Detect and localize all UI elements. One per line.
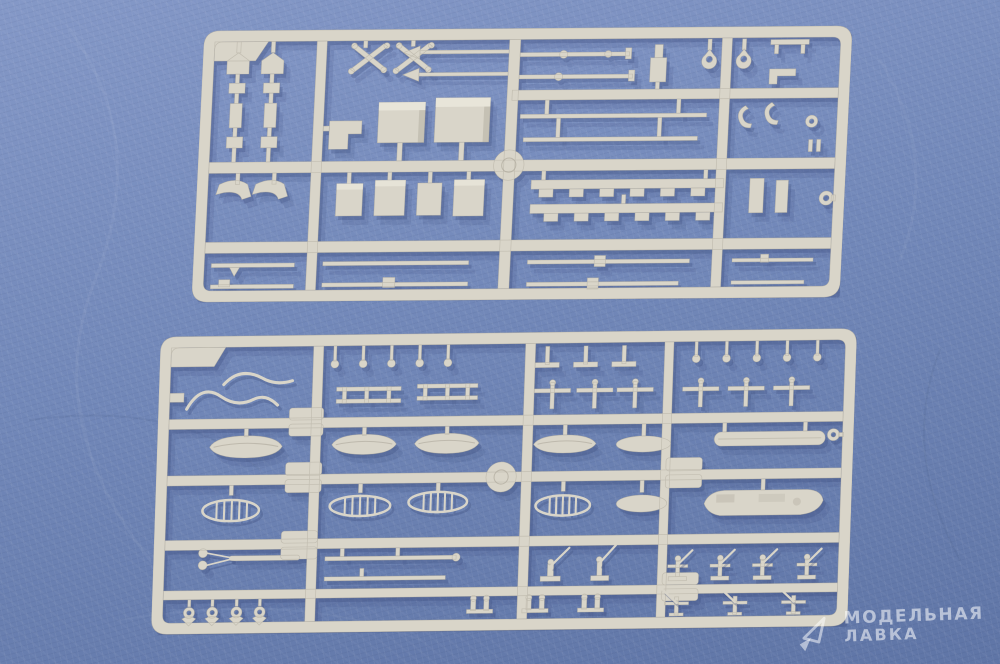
photo-scene: МОДЕЛЬНАЯ ЛАВКА (0, 0, 1000, 664)
sprue-bottom (151, 328, 857, 635)
model-lavka-logo-icon (792, 610, 836, 655)
watermark-text: МОДЕЛЬНАЯ ЛАВКА (843, 605, 984, 645)
watermark: МОДЕЛЬНАЯ ЛАВКА (792, 597, 985, 656)
sprue-top (191, 25, 852, 302)
watermark-line2: ЛАВКА (844, 623, 985, 645)
